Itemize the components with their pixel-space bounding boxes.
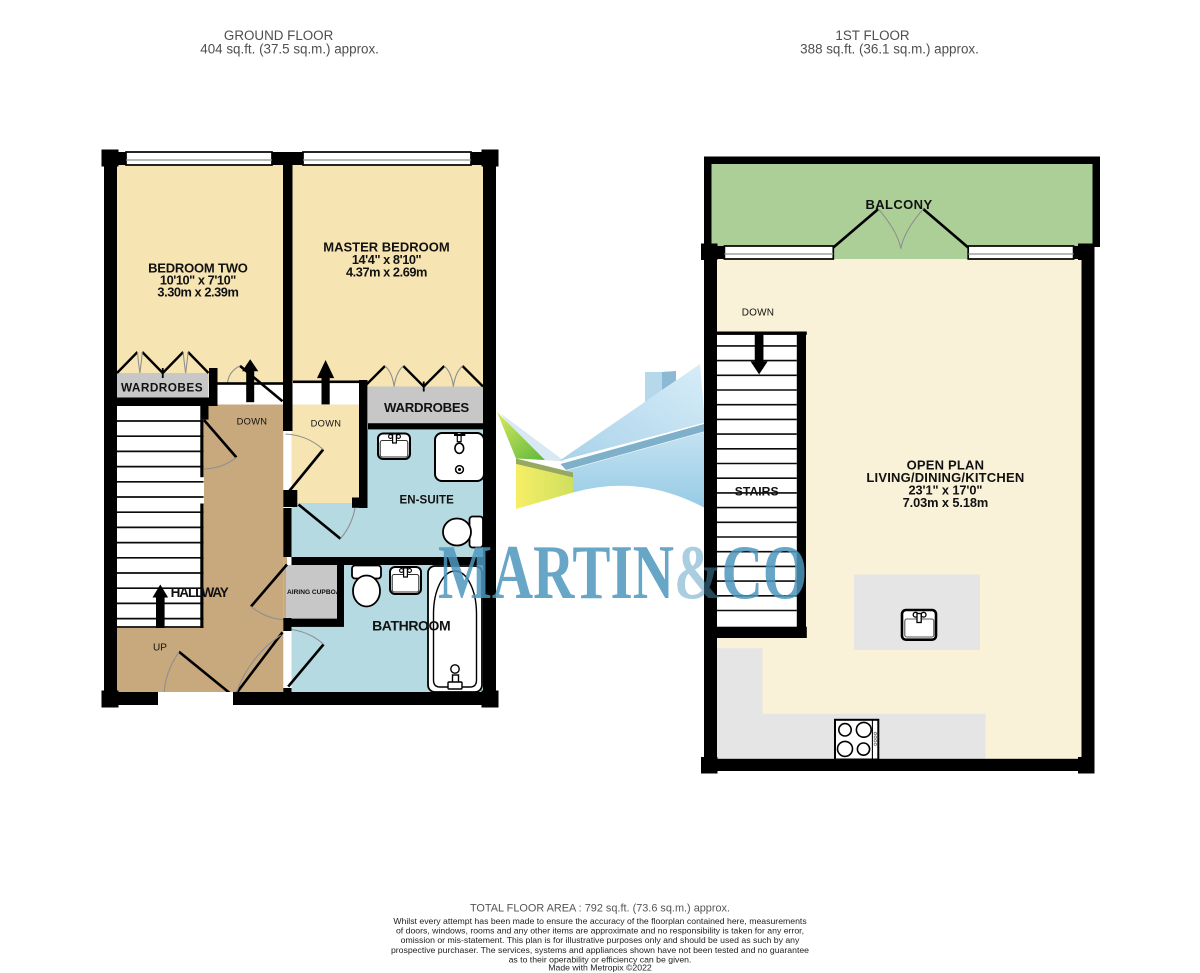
svg-text:DOWN: DOWN (311, 419, 342, 429)
svg-text:UP: UP (153, 643, 167, 654)
svg-text:omission or mis-statement. Thi: omission or mis-statement. This plan is … (401, 935, 800, 945)
svg-text:7.03m x 5.18m: 7.03m x 5.18m (903, 495, 989, 510)
svg-text:TOTAL FLOOR AREA : 792 sq.ft.: TOTAL FLOOR AREA : 792 sq.ft. (73.6 sq.m… (470, 903, 730, 915)
svg-text:Made with Metropix ©2022: Made with Metropix ©2022 (548, 962, 652, 972)
svg-text:3.30m x 2.39m: 3.30m x 2.39m (157, 285, 238, 300)
svg-text:HALLWAY: HALLWAY (171, 585, 229, 600)
svg-text:WARDROBES: WARDROBES (121, 380, 203, 394)
svg-text:prospective purchaser. The ser: prospective purchaser. The services, sys… (391, 945, 809, 955)
svg-text:BATHROOM: BATHROOM (372, 618, 450, 634)
svg-text:WARDROBES: WARDROBES (384, 400, 469, 415)
svg-text:404 sq.ft. (37.5 sq.m.) approx: 404 sq.ft. (37.5 sq.m.) approx. (200, 42, 379, 57)
svg-text:of doors, windows, rooms and a: of doors, windows, rooms and any other i… (396, 926, 804, 936)
svg-text:4.37m x 2.69m: 4.37m x 2.69m (346, 264, 427, 279)
svg-text:MARTIN&CO: MARTIN&CO (438, 530, 807, 615)
svg-text:Whilst every attempt has been: Whilst every attempt has been made to en… (393, 916, 807, 926)
svg-text:GROUND FLOOR: GROUND FLOOR (224, 28, 334, 43)
svg-text:DOWN: DOWN (237, 417, 268, 427)
svg-text:STAIRS: STAIRS (735, 485, 779, 499)
svg-text:BALCONY: BALCONY (865, 197, 932, 212)
svg-text:1ST FLOOR: 1ST FLOOR (835, 28, 909, 43)
svg-text:DOWN: DOWN (742, 308, 774, 319)
svg-text:388 sq.ft. (36.1 sq.m.) approx: 388 sq.ft. (36.1 sq.m.) approx. (800, 42, 979, 57)
svg-text:EN-SUITE: EN-SUITE (399, 494, 454, 506)
